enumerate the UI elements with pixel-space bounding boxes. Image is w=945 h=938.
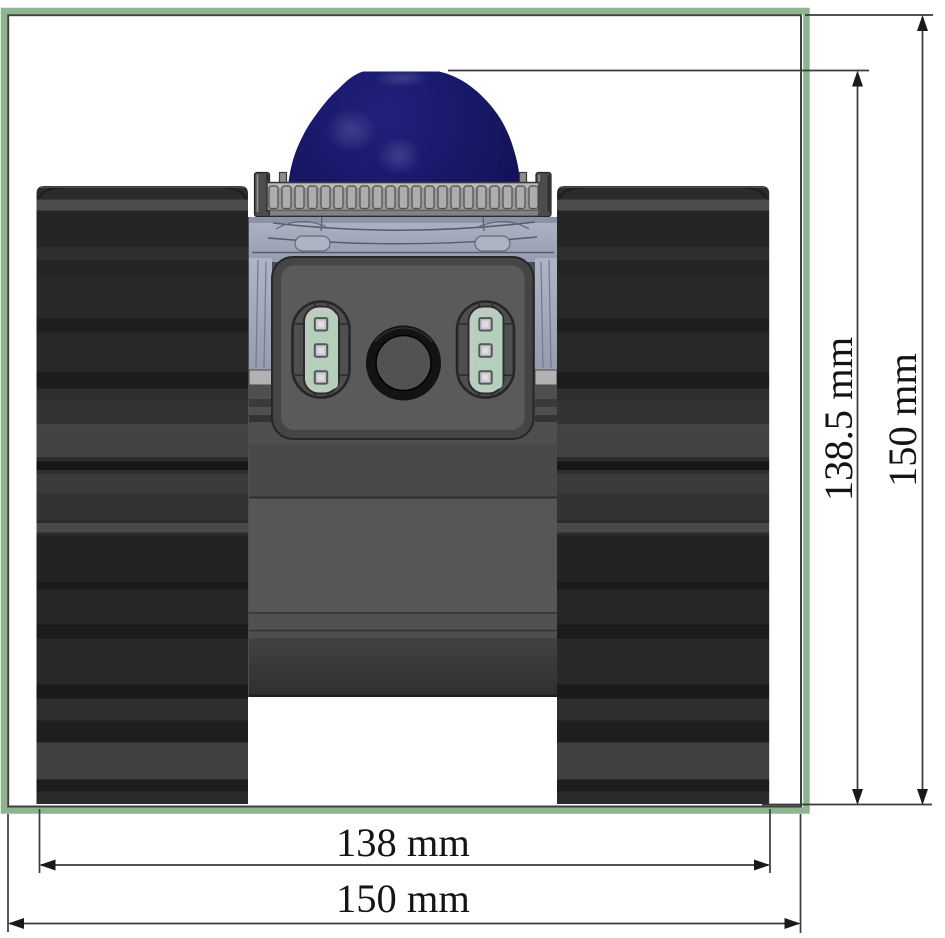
svg-text:138 mm: 138 mm: [336, 820, 470, 865]
svg-text:150 mm: 150 mm: [336, 876, 470, 921]
svg-text:150 mm: 150 mm: [880, 353, 925, 487]
svg-text:138.5 mm: 138.5 mm: [816, 337, 861, 501]
